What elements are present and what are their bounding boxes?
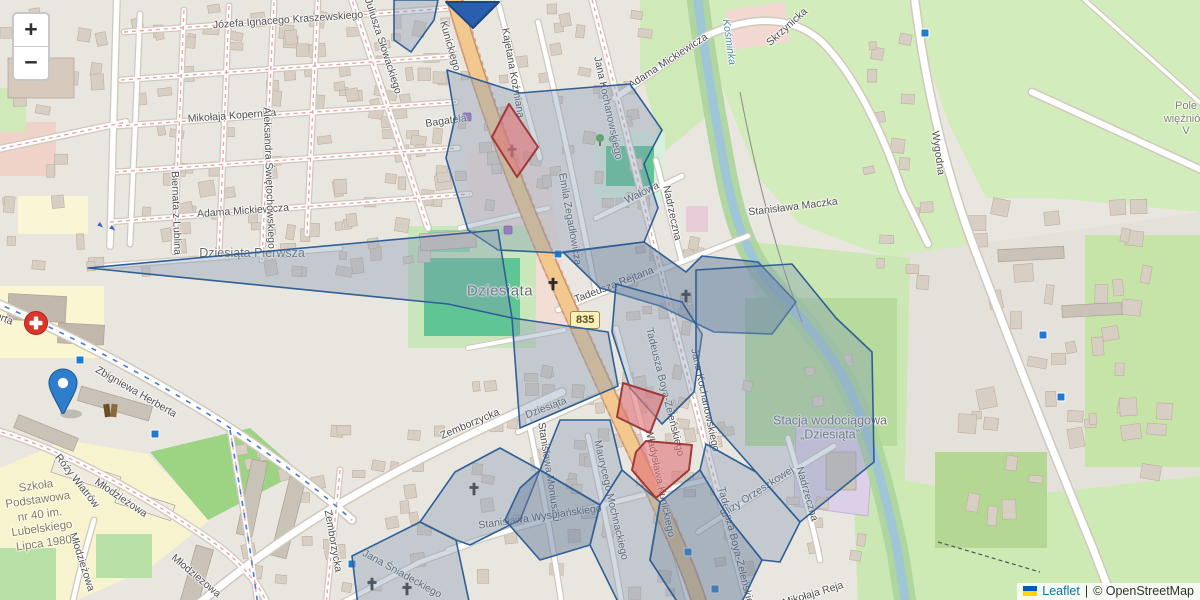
zoom-control: + − (12, 12, 50, 81)
attribution-separator: | (1085, 584, 1088, 598)
zones-overlay-layer[interactable] (0, 0, 1200, 600)
zone-polygon-7[interactable] (512, 318, 618, 428)
zone-polygon-3[interactable] (88, 230, 512, 318)
zone-polygon-2[interactable] (446, 70, 662, 253)
leaflet-link[interactable]: Leaflet (1042, 584, 1080, 598)
osm-credit: © OpenStreetMap (1093, 584, 1194, 598)
attribution-bar: Leaflet | © OpenStreetMap (1017, 583, 1200, 600)
zoom-in-button[interactable]: + (14, 14, 48, 47)
ukraine-flag-icon (1023, 586, 1037, 596)
zoom-out-button[interactable]: − (14, 47, 48, 79)
map-canvas[interactable]: 835 Józefa Ignacego KraszewskiegoMikołaj… (0, 0, 1200, 600)
zone-polygon-1[interactable] (394, 0, 438, 52)
